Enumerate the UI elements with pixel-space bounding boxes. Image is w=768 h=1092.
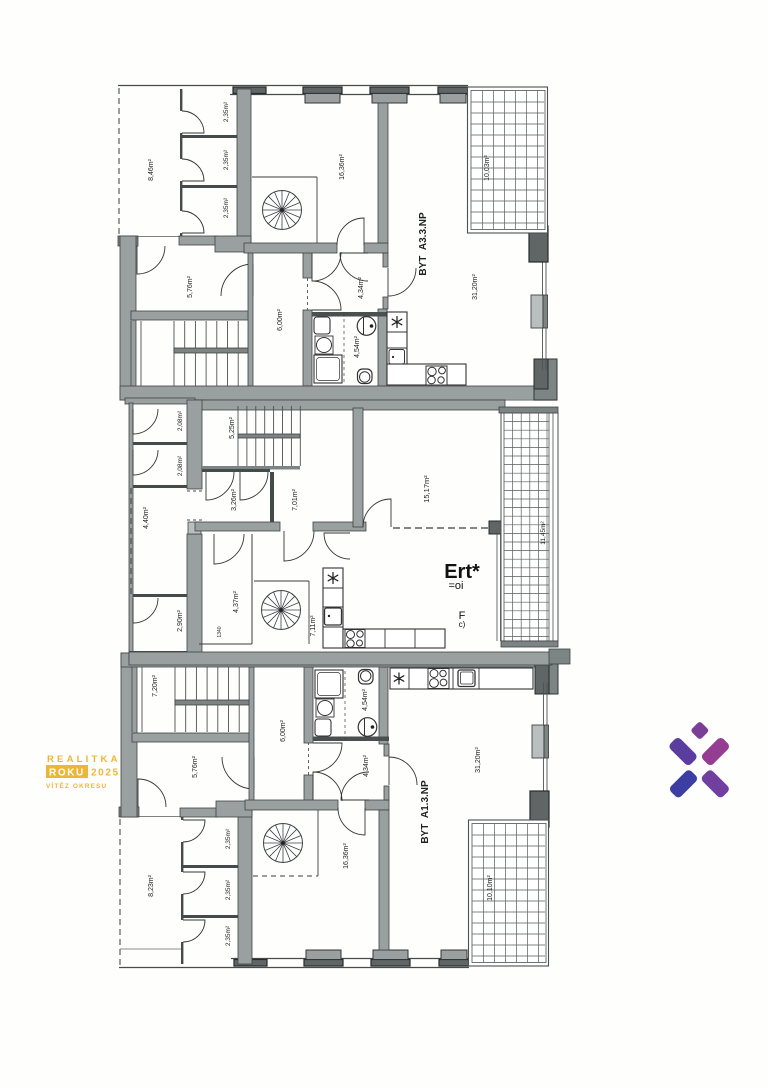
svg-text:2025: 2025: [91, 768, 120, 779]
svg-text:ROKU: ROKU: [49, 768, 85, 779]
svg-text:10,03m²: 10,03m²: [484, 154, 491, 180]
svg-text:8,23m²: 8,23m²: [148, 874, 155, 896]
svg-text:BYT A1.3.NP: BYT A1.3.NP: [420, 780, 431, 844]
svg-text:c): c): [459, 620, 466, 629]
svg-text:4,34m²: 4,34m²: [363, 754, 370, 776]
svg-text:10,10m²: 10,10m²: [487, 874, 494, 900]
svg-text:4,37m²: 4,37m²: [233, 590, 240, 612]
svg-text:2,08m²: 2,08m²: [177, 455, 184, 476]
svg-text:2,90m²: 2,90m²: [177, 609, 184, 631]
svg-text:4,54m²: 4,54m²: [354, 335, 361, 357]
svg-text:31,20m²: 31,20m²: [472, 273, 479, 299]
svg-text:2,35m²: 2,35m²: [225, 828, 232, 849]
svg-text:5,25m²: 5,25m²: [229, 416, 236, 438]
svg-text:6,00m²: 6,00m²: [277, 308, 284, 330]
svg-text:7,20m²: 7,20m²: [152, 674, 159, 696]
svg-text:7,01m²: 7,01m²: [292, 488, 299, 510]
svg-text:31,20m²: 31,20m²: [475, 746, 482, 772]
svg-text:4,54m²: 4,54m²: [362, 688, 369, 710]
svg-text:15,17m²: 15,17m²: [422, 475, 431, 503]
svg-text:5,76m²: 5,76m²: [187, 275, 194, 297]
svg-text:2,35m²: 2,35m²: [223, 101, 230, 122]
svg-text:=oi: =oi: [449, 580, 464, 592]
svg-text:16,36m²: 16,36m²: [343, 842, 350, 868]
svg-text:REALITKA: REALITKA: [47, 754, 121, 765]
svg-text:7,11m²: 7,11m²: [310, 615, 317, 637]
svg-text:6,00m²: 6,00m²: [280, 719, 287, 741]
svg-text:2,35m²: 2,35m²: [223, 197, 230, 218]
svg-text:3,26m²: 3,26m²: [231, 488, 238, 510]
svg-text:BYT A3.3.NP: BYT A3.3.NP: [418, 212, 429, 276]
svg-text:16,36m²: 16,36m²: [339, 153, 346, 179]
svg-text:5,76m²: 5,76m²: [192, 755, 199, 777]
svg-text:4,34m²: 4,34m²: [358, 276, 365, 298]
svg-text:4,40m²: 4,40m²: [143, 506, 150, 528]
svg-text:2,08m²: 2,08m²: [177, 410, 184, 431]
svg-text:2,35m²: 2,35m²: [225, 879, 232, 900]
svg-text:2,35m²: 2,35m²: [225, 925, 232, 946]
svg-text:1340: 1340: [217, 626, 223, 637]
svg-text:VÍTĚZ OKRESU: VÍTĚZ OKRESU: [46, 781, 107, 790]
svg-text:11,45m²: 11,45m²: [540, 520, 547, 544]
svg-text:2,35m²: 2,35m²: [223, 149, 230, 170]
svg-text:8,46m²: 8,46m²: [148, 158, 155, 180]
